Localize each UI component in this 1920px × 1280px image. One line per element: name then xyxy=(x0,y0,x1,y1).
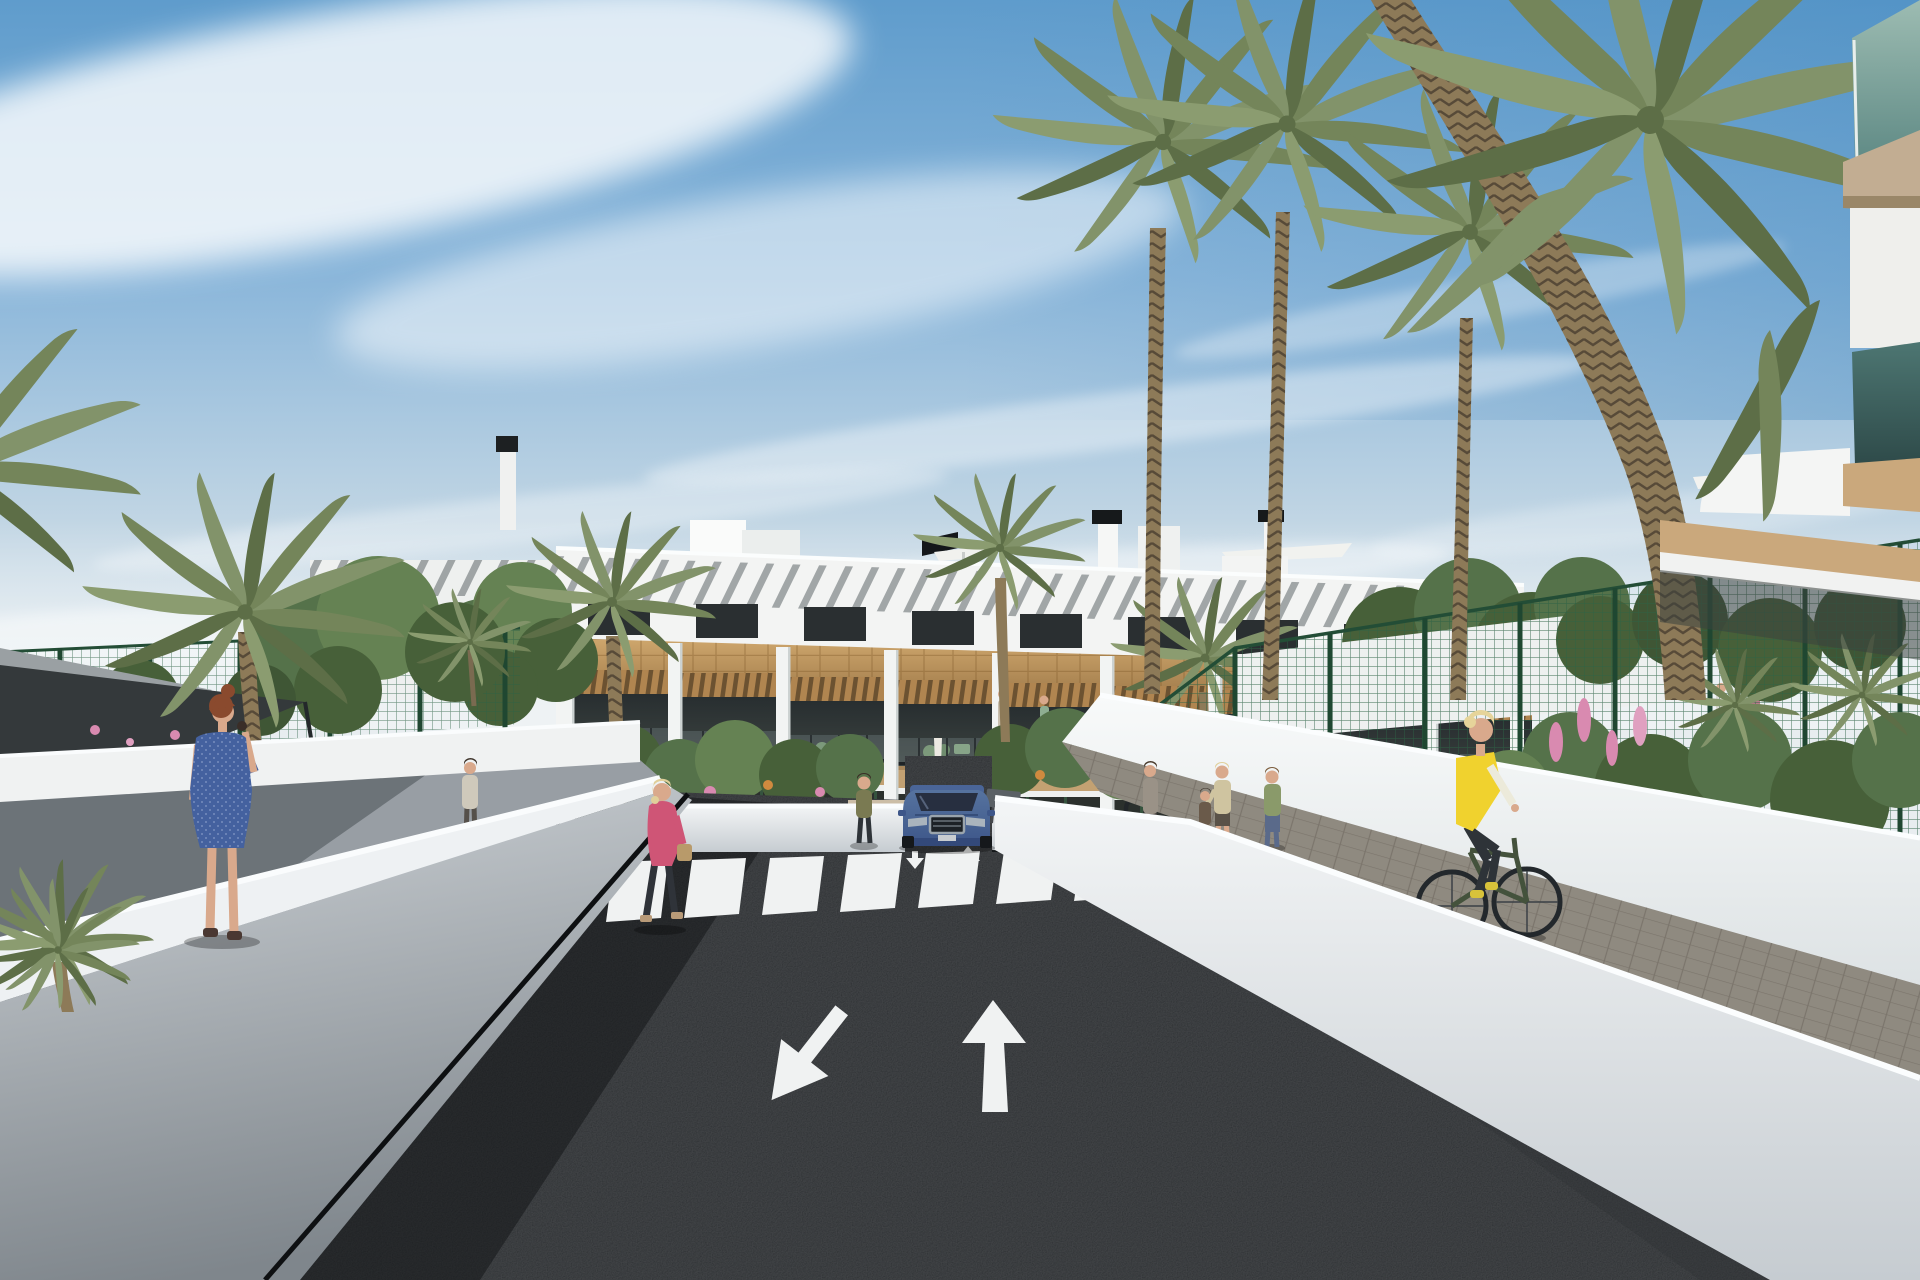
phone xyxy=(237,721,247,731)
grille xyxy=(930,816,964,833)
handbag xyxy=(677,844,692,861)
render-image xyxy=(0,0,1920,1280)
glass-balustrade-lower xyxy=(1852,342,1920,466)
blue-suv xyxy=(898,785,995,854)
